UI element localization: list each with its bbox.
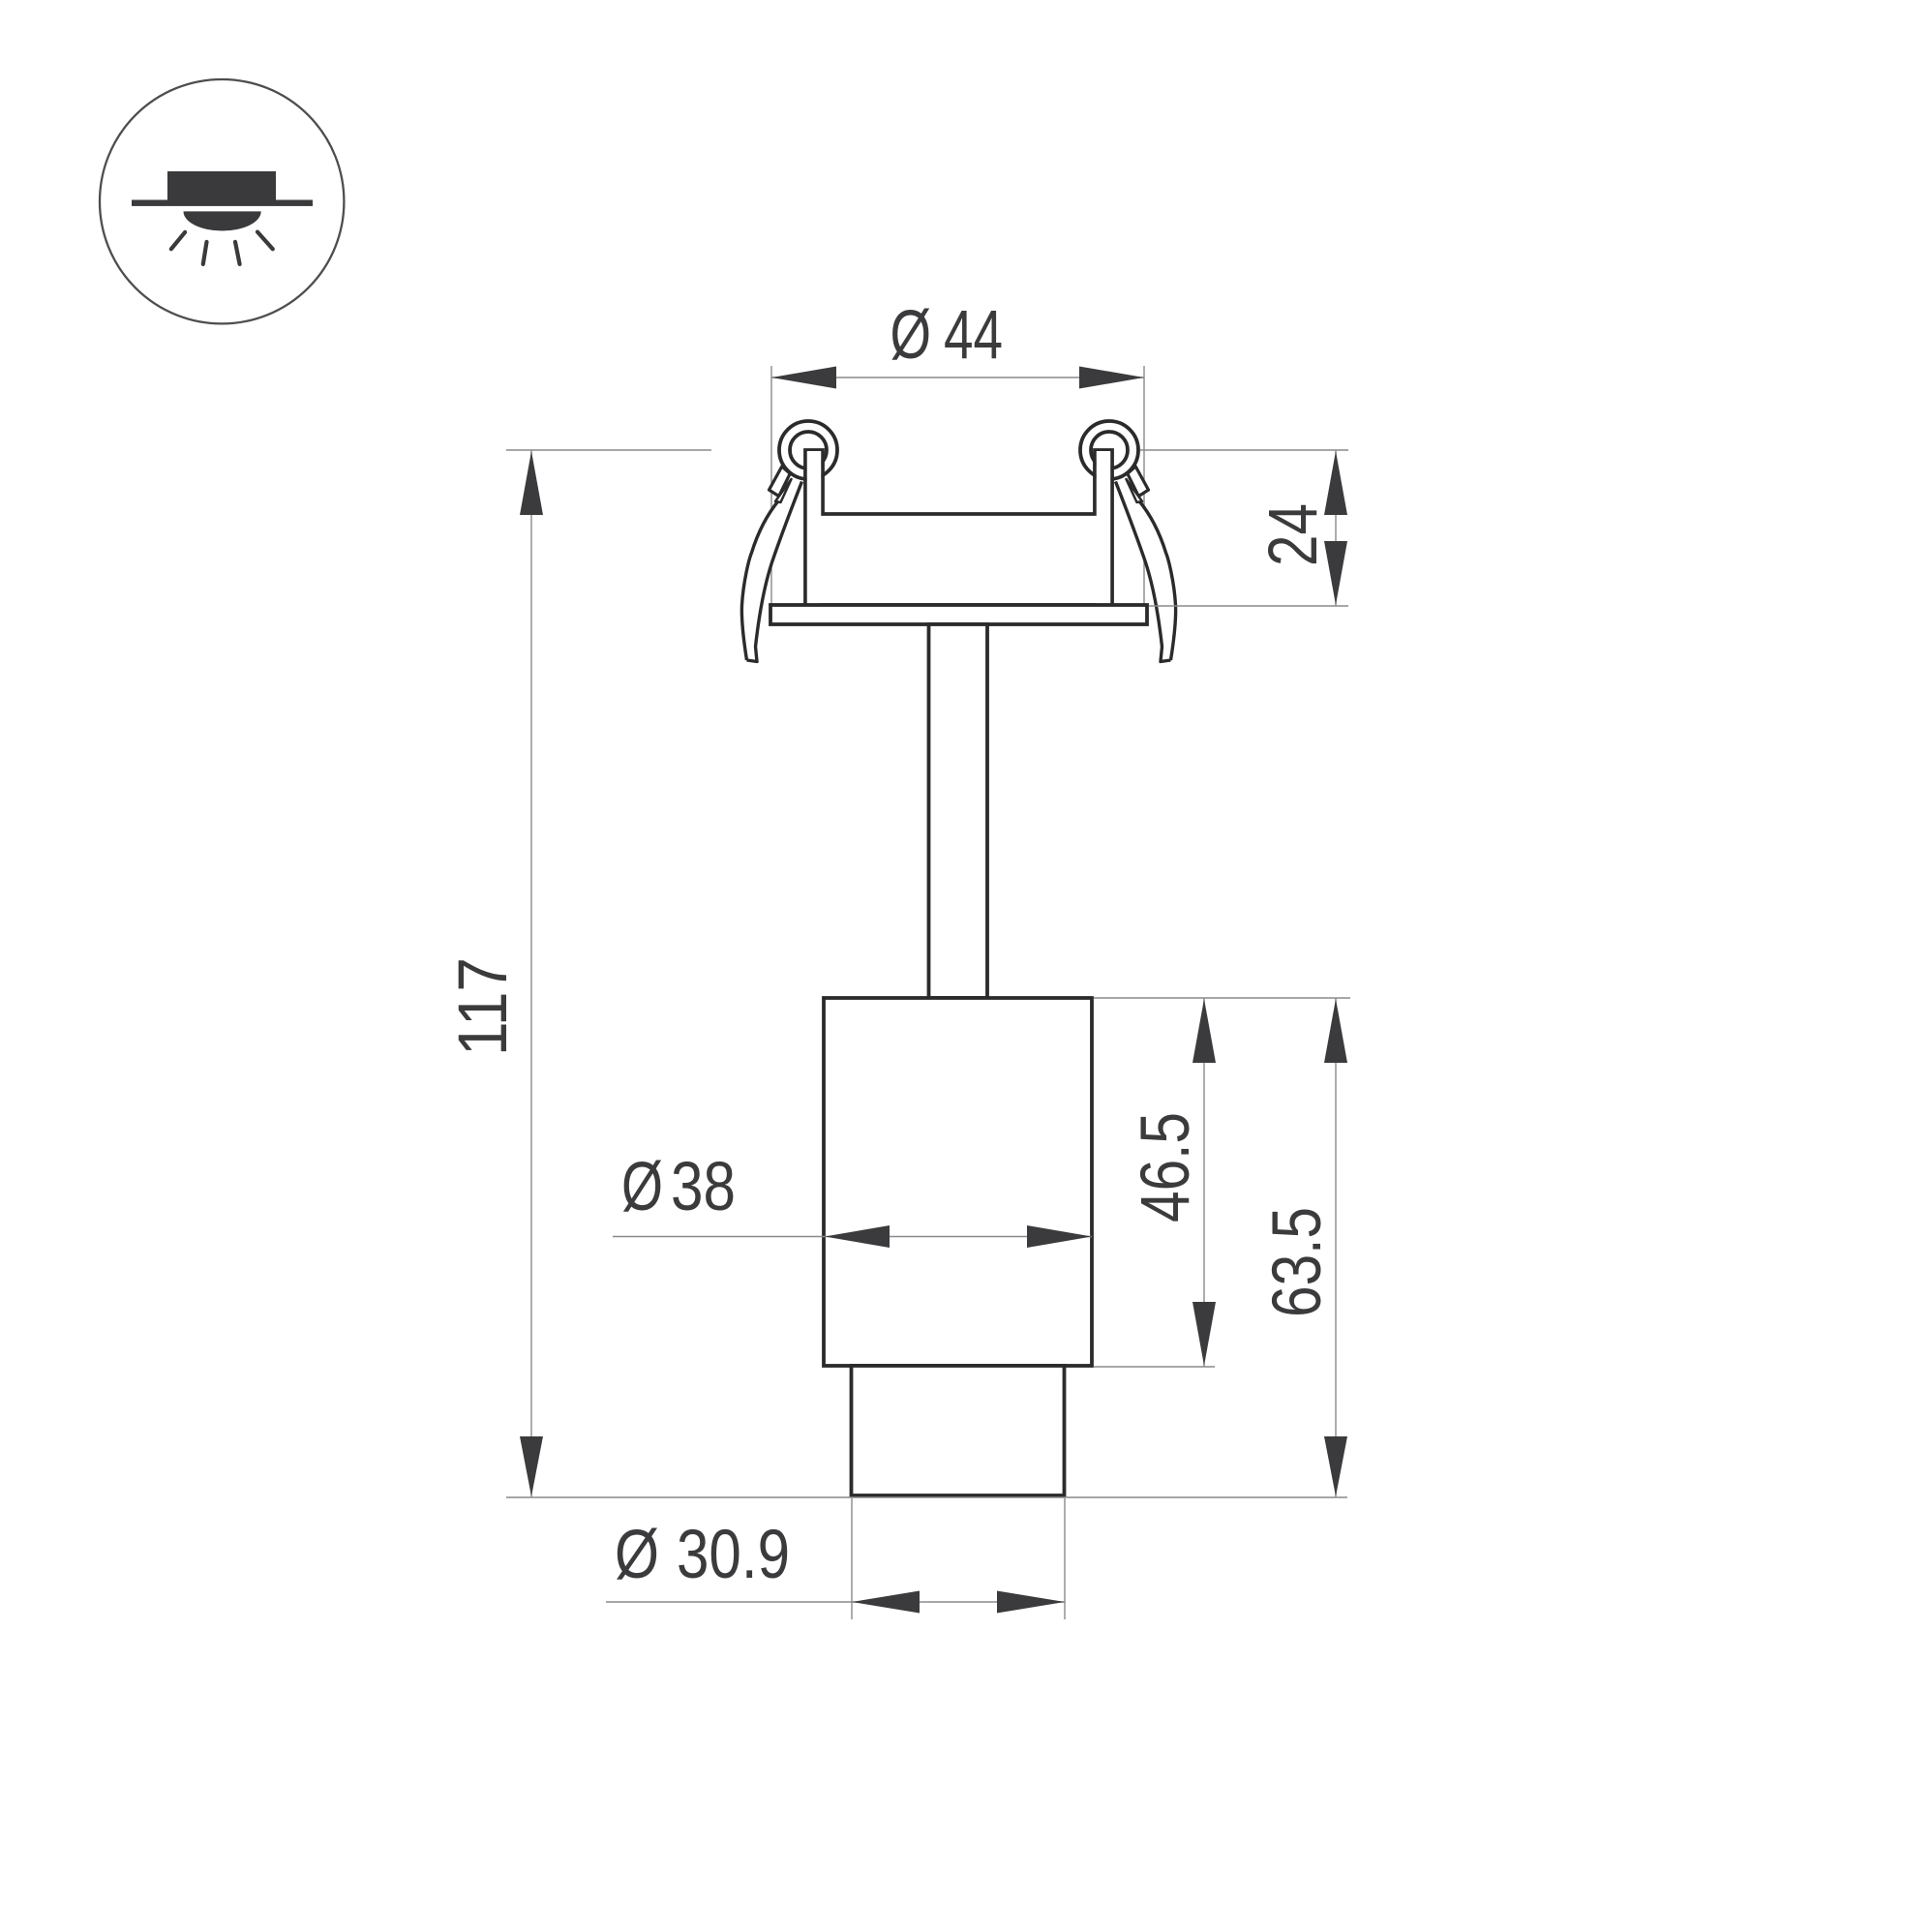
- svg-text:44: 44: [944, 297, 1003, 374]
- svg-text:30.9: 30.9: [677, 1517, 790, 1593]
- svg-text:Ø: Ø: [615, 1517, 659, 1593]
- svg-text:Ø: Ø: [891, 297, 932, 374]
- svg-text:Ø: Ø: [621, 1149, 663, 1225]
- svg-text:63.5: 63.5: [1259, 1207, 1336, 1317]
- svg-text:38: 38: [671, 1149, 736, 1225]
- svg-text:117: 117: [445, 957, 522, 1056]
- svg-text:24: 24: [1255, 503, 1332, 566]
- svg-text:46.5: 46.5: [1128, 1112, 1204, 1223]
